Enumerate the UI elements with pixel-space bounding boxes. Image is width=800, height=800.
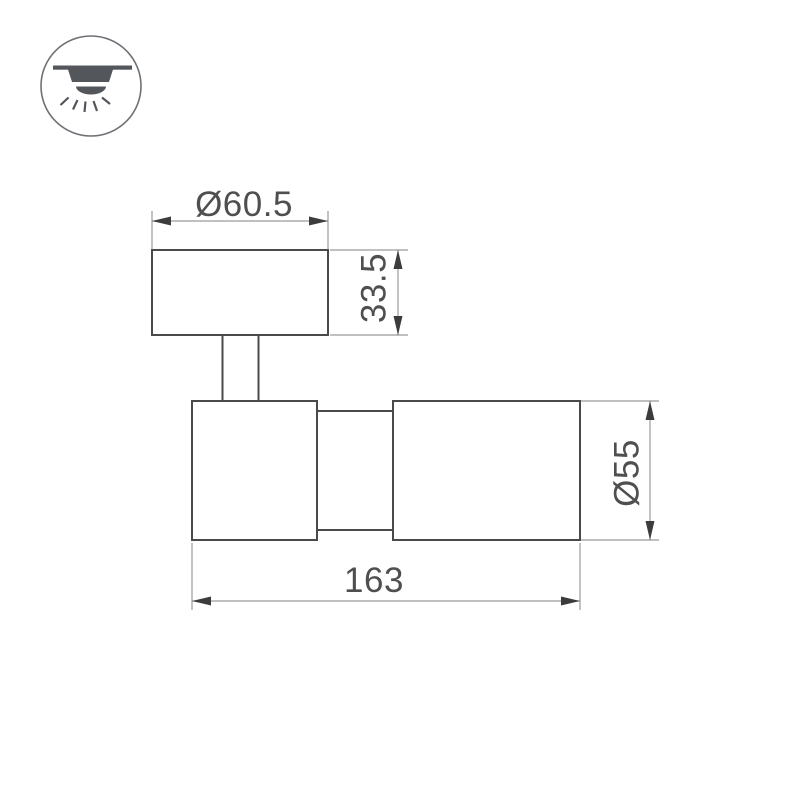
label-overall-length: 163: [344, 561, 404, 600]
arrowhead-left: [152, 217, 171, 226]
drawing-canvas: Ø60.5 33.5 Ø55 163: [0, 0, 800, 800]
label-base-height: 33.5: [355, 253, 394, 323]
arrowhead-right: [561, 597, 580, 606]
light-ray: [85, 102, 86, 113]
lamp-head-outline: [393, 401, 580, 540]
label-head-diameter: Ø55: [608, 439, 647, 507]
arrowhead-up: [646, 401, 655, 420]
arrowhead-down: [646, 521, 655, 540]
arrowhead-right: [309, 217, 328, 226]
dimension-labels: Ø60.5 33.5 Ø55 163: [195, 185, 646, 600]
arrowhead-up: [394, 250, 403, 269]
mount-type-icon: [41, 36, 141, 136]
icon-fixture-body: [68, 70, 113, 83]
rear-housing-outline: [192, 401, 317, 540]
icon-circle: [41, 36, 141, 136]
dimension-lines: [152, 211, 659, 610]
icon-ceiling-line: [53, 66, 132, 70]
label-base-diameter: Ø60.5: [195, 185, 293, 224]
arrowhead-down: [394, 316, 403, 335]
spotlight-dimension-drawing: Ø60.5 33.5 Ø55 163: [0, 0, 800, 800]
arrowhead-left: [192, 597, 211, 606]
mount-base-outline: [152, 250, 328, 335]
